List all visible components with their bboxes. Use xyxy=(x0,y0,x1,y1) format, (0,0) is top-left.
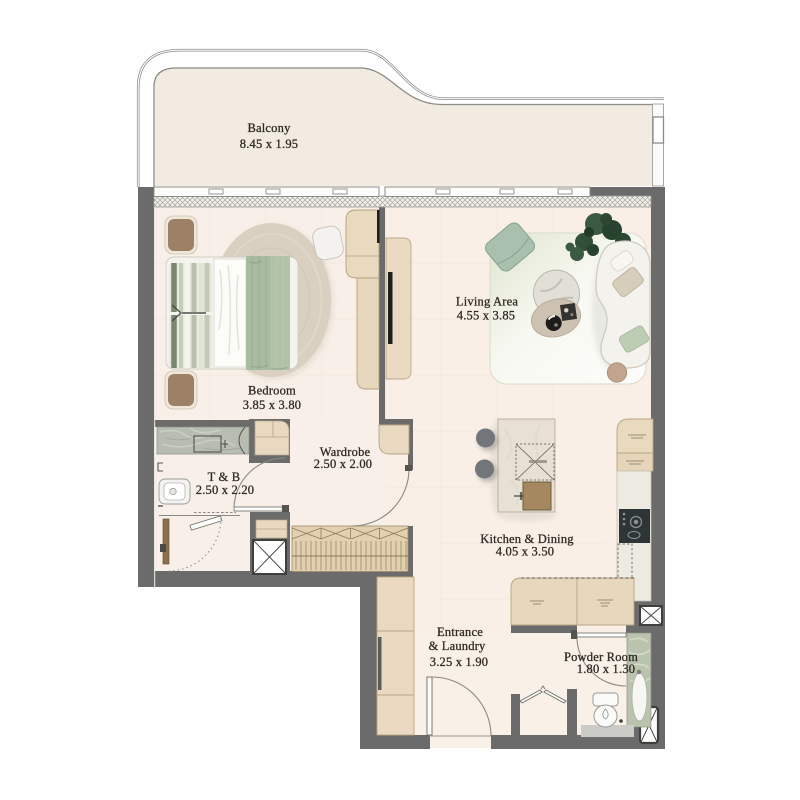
svg-text:Living Area: Living Area xyxy=(456,295,519,309)
svg-text:& Laundry: & Laundry xyxy=(429,639,487,653)
svg-text:Bedroom: Bedroom xyxy=(248,384,296,398)
svg-text:T & B: T & B xyxy=(208,470,241,484)
svg-text:3.25 x 1.90: 3.25 x 1.90 xyxy=(430,655,488,669)
svg-text:Entrance: Entrance xyxy=(437,625,483,639)
svg-text:2.50 x 2.20: 2.50 x 2.20 xyxy=(196,483,254,497)
svg-text:Balcony: Balcony xyxy=(247,121,291,135)
svg-text:1.80 x 1.30: 1.80 x 1.30 xyxy=(577,662,635,676)
svg-text:3.85 x 3.80: 3.85 x 3.80 xyxy=(243,398,301,412)
svg-text:4.55 x 3.85: 4.55 x 3.85 xyxy=(457,309,515,323)
svg-text:2.50 x 2.00: 2.50 x 2.00 xyxy=(314,457,372,471)
svg-text:4.05 x 3.50: 4.05 x 3.50 xyxy=(496,545,554,559)
svg-text:8.45 x 1.95: 8.45 x 1.95 xyxy=(240,137,298,151)
